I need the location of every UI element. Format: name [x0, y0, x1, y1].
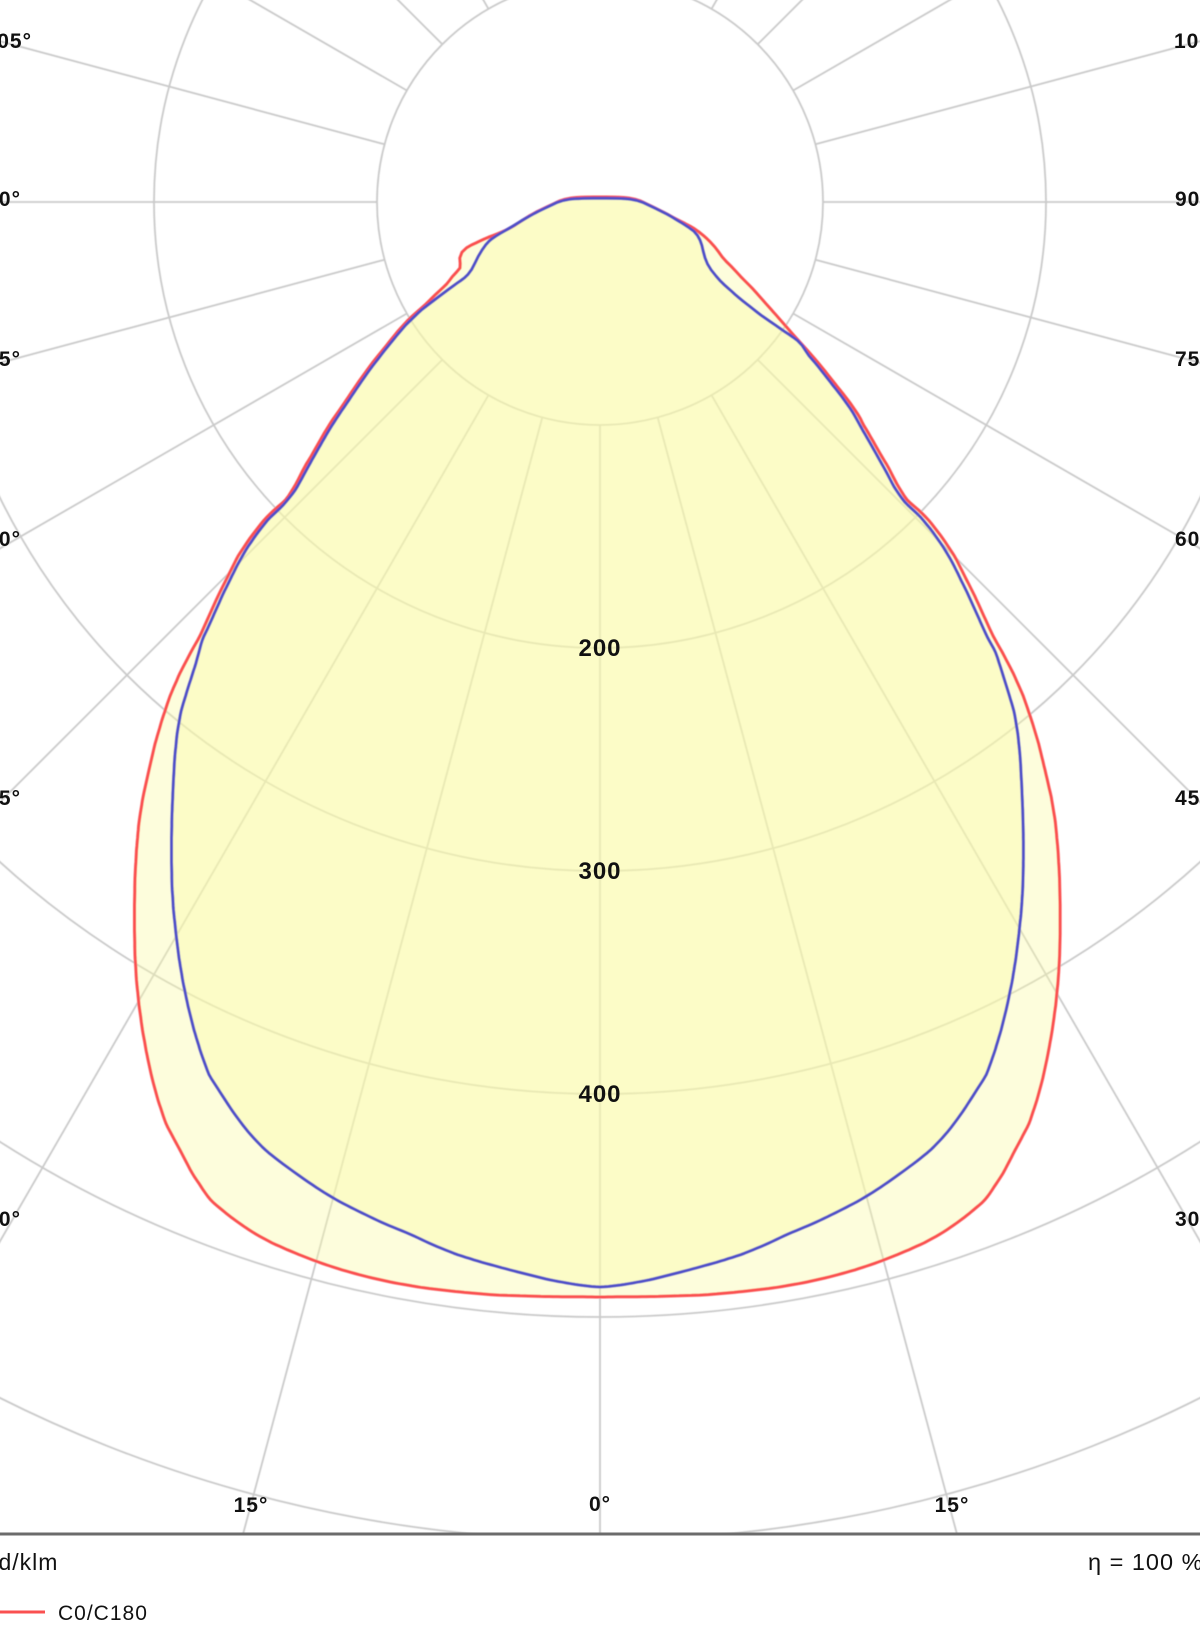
svg-text:30°: 30° [1175, 1208, 1200, 1231]
svg-text:105°: 105° [1174, 30, 1200, 53]
svg-text:75°: 75° [0, 348, 21, 371]
svg-text:15°: 15° [935, 1494, 970, 1517]
svg-text:90°: 90° [1175, 188, 1200, 211]
svg-text:0°: 0° [589, 1493, 611, 1516]
svg-text:200: 200 [578, 635, 621, 662]
svg-text:90°: 90° [0, 188, 21, 211]
svg-text:cd/klm: cd/klm [0, 1549, 58, 1575]
svg-text:60°: 60° [1175, 528, 1200, 551]
svg-text:15°: 15° [234, 1494, 269, 1517]
svg-text:C0/C180: C0/C180 [58, 1602, 148, 1625]
svg-text:60°: 60° [0, 528, 21, 551]
svg-text:400: 400 [578, 1081, 621, 1108]
svg-text:30°: 30° [0, 1208, 21, 1231]
svg-text:105°: 105° [0, 30, 32, 53]
svg-text:75°: 75° [1175, 348, 1200, 371]
svg-text:45°: 45° [0, 787, 21, 810]
svg-text:η = 100 %: η = 100 % [1088, 1549, 1200, 1575]
svg-text:300: 300 [578, 858, 621, 885]
svg-text:45°: 45° [1175, 787, 1200, 810]
